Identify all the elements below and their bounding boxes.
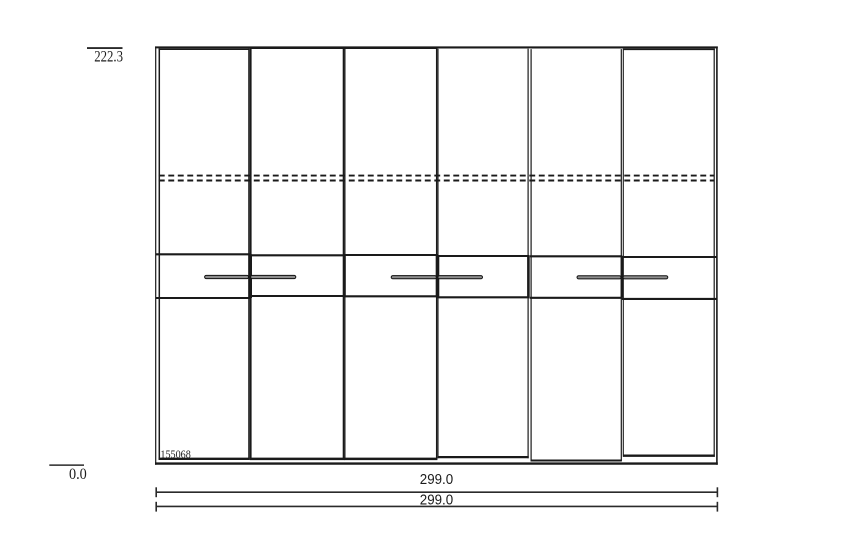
- svg-text:222.3: 222.3: [94, 48, 123, 65]
- svg-text:0.0: 0.0: [69, 466, 87, 483]
- svg-text:155068: 155068: [160, 447, 190, 461]
- svg-text:299.0: 299.0: [420, 471, 453, 488]
